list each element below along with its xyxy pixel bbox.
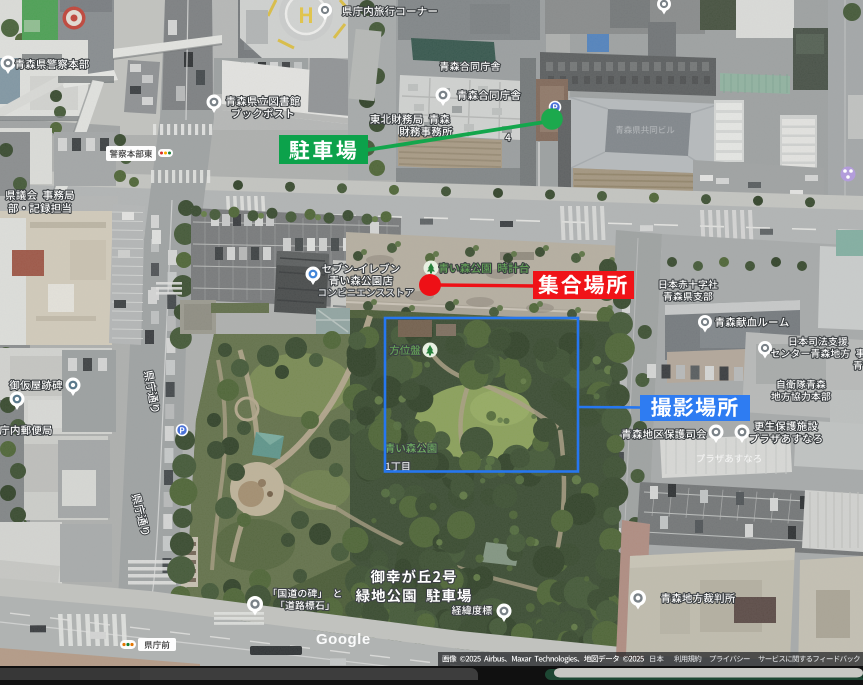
svg-text:Google: Google: [316, 631, 371, 648]
